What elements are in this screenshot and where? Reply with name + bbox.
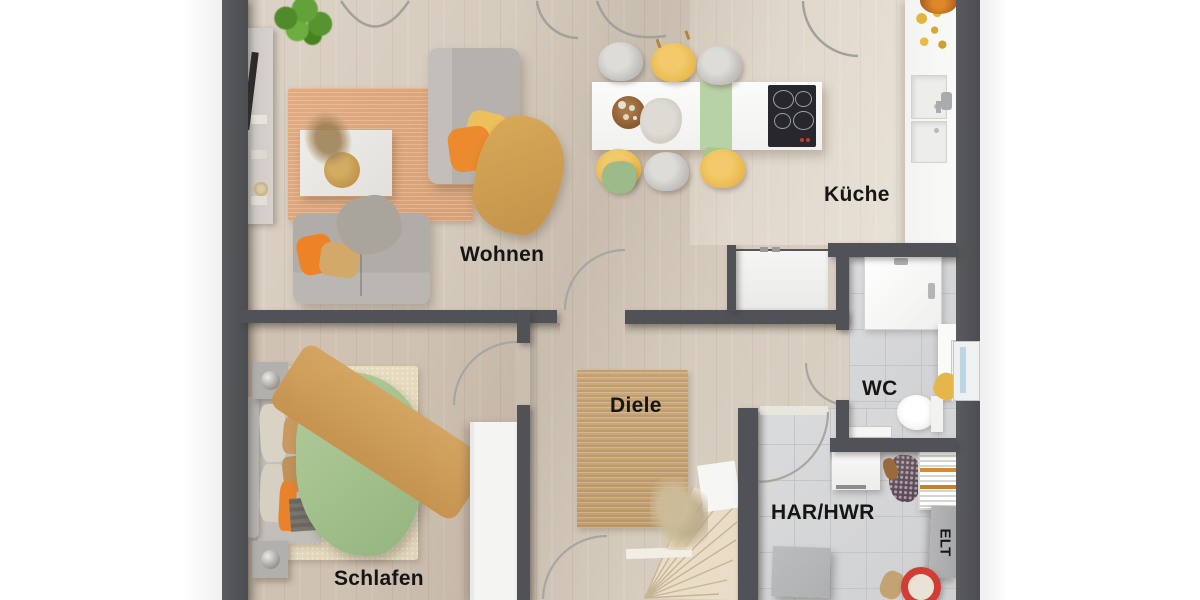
dining-chair-yellow-3 bbox=[700, 149, 745, 188]
outside-right bbox=[980, 0, 1200, 600]
cooktop-indicator bbox=[800, 138, 804, 142]
fridge-hinges bbox=[760, 247, 768, 252]
wall-wc-bottom bbox=[830, 438, 956, 452]
bucket-red bbox=[901, 567, 941, 600]
sideboard-plate bbox=[254, 182, 268, 196]
sink-drain bbox=[934, 104, 939, 109]
dining-chair-gray-2 bbox=[697, 46, 742, 85]
table-runner bbox=[700, 82, 732, 150]
outer-wall-right bbox=[956, 0, 980, 600]
room-label-har-hwr: HAR/HWR bbox=[771, 501, 875, 525]
window-glass bbox=[960, 347, 966, 393]
dining-chair-gray-1 bbox=[598, 42, 643, 81]
wall-wc-left-lower bbox=[836, 400, 849, 438]
room-label-kueche: Küche bbox=[824, 183, 890, 207]
room-label-wohnen: Wohnen bbox=[460, 243, 544, 267]
room-label-elt: ELT bbox=[937, 526, 954, 560]
wall-wc-top bbox=[828, 243, 956, 257]
dried-grass-plant bbox=[650, 478, 708, 550]
window-frame-outer bbox=[953, 341, 980, 401]
nightstand-lamp-bottom bbox=[261, 550, 280, 569]
storage-box bbox=[771, 546, 831, 598]
outer-wall-left bbox=[222, 0, 248, 600]
towel-radiator bbox=[842, 426, 892, 438]
wall-bedroom-right bbox=[517, 405, 530, 600]
cooktop-burner-1 bbox=[773, 90, 794, 109]
room-label-schlafen: Schlafen bbox=[334, 567, 424, 591]
wall-har-left bbox=[738, 408, 758, 600]
wall-wc-left-upper bbox=[836, 257, 849, 330]
wall-bedroom-top-left bbox=[240, 310, 557, 323]
floor-plan: Wohnen Küche WC Diele HAR/HWR Schlafen E… bbox=[0, 0, 1200, 600]
wall-kitchen-niche bbox=[727, 245, 736, 311]
potted-plant bbox=[263, 0, 339, 50]
sideboard-books bbox=[251, 115, 267, 124]
cooktop-burner-2 bbox=[795, 91, 812, 107]
dining-chair-yellow-1 bbox=[651, 43, 696, 82]
fridge-cabinet bbox=[736, 249, 828, 313]
cooktop-burner-3 bbox=[774, 113, 791, 129]
kitchen-sink-2 bbox=[911, 121, 947, 163]
faucet bbox=[941, 92, 952, 110]
washer-controls bbox=[836, 485, 866, 489]
wall-bedroom-right-stub bbox=[517, 310, 530, 343]
shower-handle bbox=[928, 283, 935, 299]
room-label-diele: Diele bbox=[610, 394, 662, 418]
dining-chair-gray-3 bbox=[644, 152, 689, 191]
wall-bedroom-top-right bbox=[625, 310, 848, 324]
outside-left bbox=[0, 0, 222, 600]
room-label-wc: WC bbox=[862, 377, 898, 401]
centerpiece-petals bbox=[618, 101, 626, 109]
cooktop-burner-4 bbox=[793, 111, 814, 130]
toilet-tank bbox=[931, 396, 943, 432]
wardrobe bbox=[470, 422, 518, 600]
drying-rack-orange-item bbox=[920, 468, 956, 472]
shower-head bbox=[894, 258, 908, 265]
